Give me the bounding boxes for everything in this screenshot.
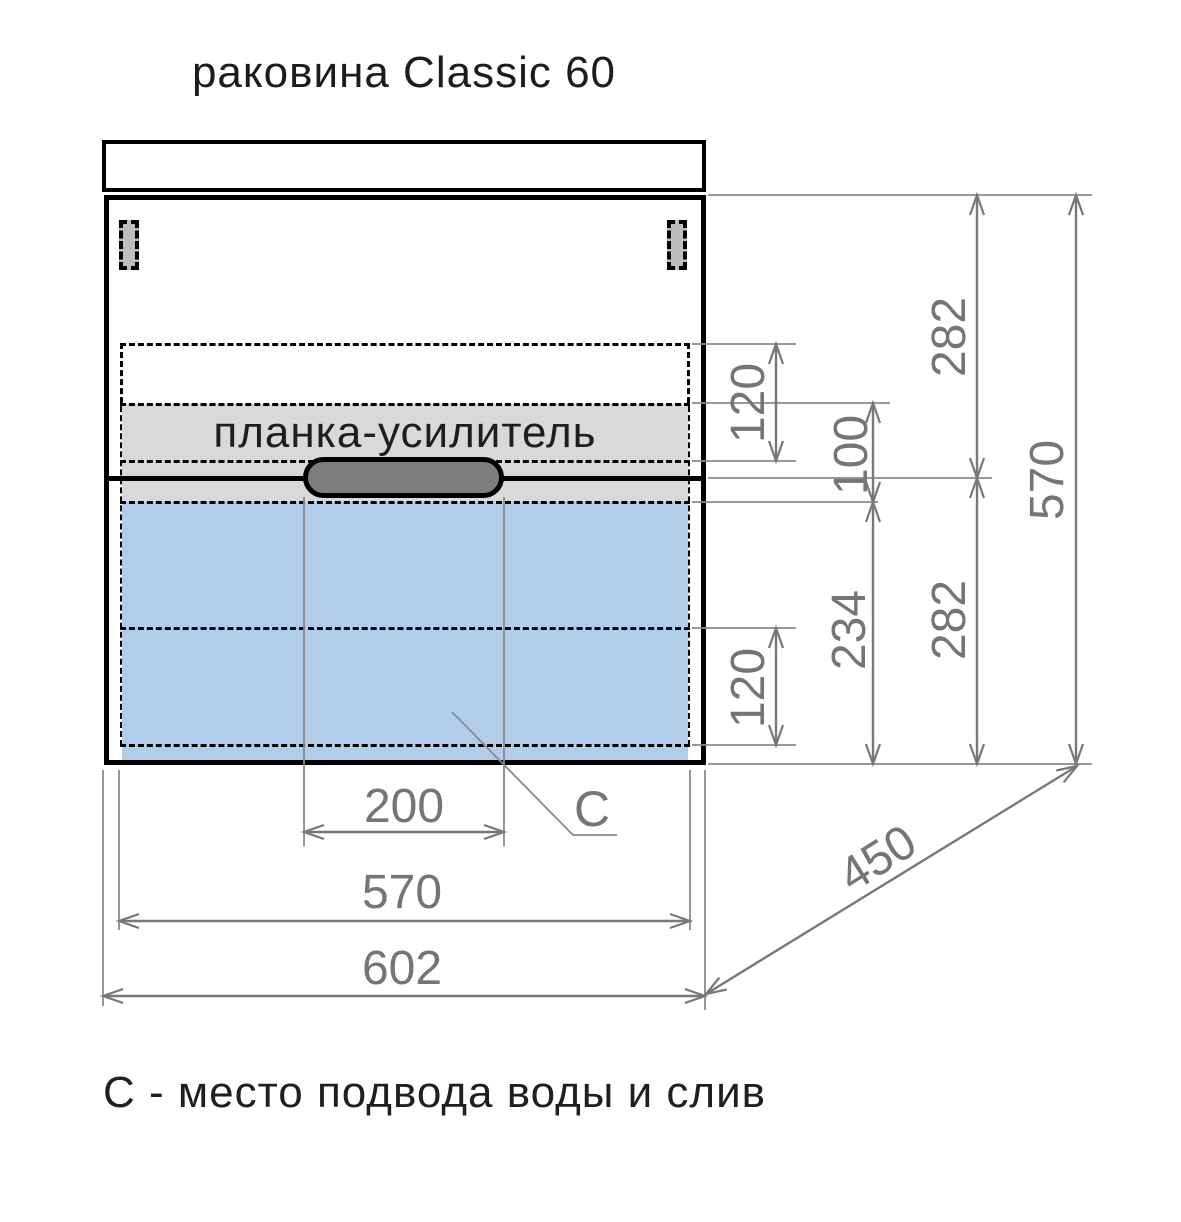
dim-120-top-label: 120 xyxy=(722,363,775,443)
dashed-line-band-bottom xyxy=(120,501,690,504)
drawer-sink-area xyxy=(122,502,688,760)
dim-234-label: 234 xyxy=(823,590,876,670)
dashed-line-footprint-bottom xyxy=(120,744,690,747)
countertop-panel xyxy=(102,140,706,192)
dim-570-bottom-label: 570 xyxy=(362,866,442,919)
dim-282-top-label: 282 xyxy=(923,297,976,377)
vanity-technical-drawing: раковина Classic 60 планка-усилитель xyxy=(0,0,1181,1222)
dashed-line-drawer-middle xyxy=(120,627,690,630)
dim-450-label: 450 xyxy=(830,815,926,903)
dim-100-label: 100 xyxy=(825,415,878,495)
dim-602-label: 602 xyxy=(362,942,442,995)
hinge-mark-left xyxy=(119,220,139,270)
legend-caption: С - место подвода воды и слив xyxy=(103,1068,1003,1118)
hinge-mark-right xyxy=(667,220,687,270)
dim-line-450 xyxy=(706,766,1077,994)
handle-cutout xyxy=(303,457,504,498)
dim-282-bottom-label: 282 xyxy=(923,580,976,660)
c-marker-label: C xyxy=(574,781,610,837)
dim-570-right-label: 570 xyxy=(1021,440,1074,520)
dim-120-bottom-label: 120 xyxy=(722,648,775,728)
reinforcement-bar-label: планка-усилитель xyxy=(122,404,688,461)
drawing-title: раковина Classic 60 xyxy=(102,48,706,98)
dim-200-label: 200 xyxy=(364,780,444,833)
